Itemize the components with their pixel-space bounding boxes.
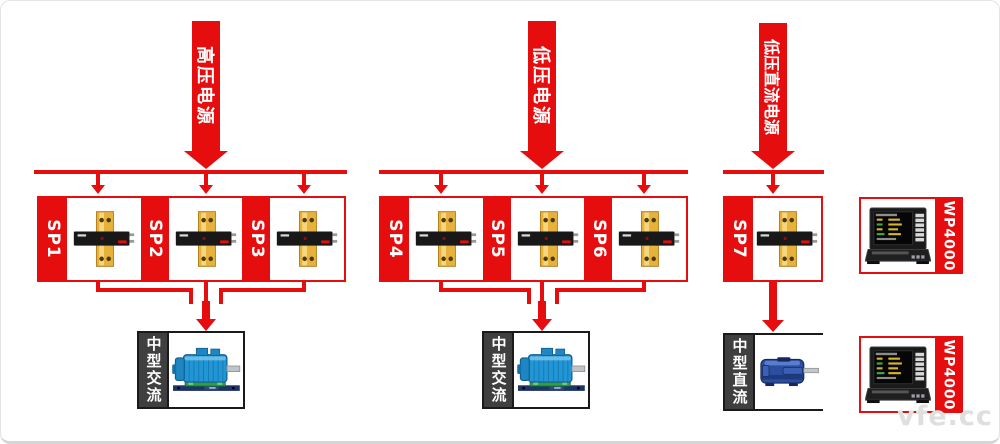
sp-module-sp4: SP4 [381,198,409,280]
banner-label-wrap: 低压直流电源 [759,23,787,151]
sp2-label: SP2 [145,219,165,259]
load-label-medium-dc: 中型直流 [732,338,747,406]
wp4000-analyzer-icon [865,346,931,404]
load-strip: 中型交流 [139,333,169,407]
sp-sensor-panel [67,198,141,280]
sp-module-sp2: SP2 [141,198,169,280]
load-arrow-shaft [769,282,777,322]
load-label-medium-ac: 中型交流 [491,336,506,404]
merge-bracket-stub [555,288,559,304]
sp-module-sp6: SP6 [584,198,612,280]
diagram-canvas: 高压电源 低压电源 低压直流电源 SP1 SP2 [0,0,1000,444]
sp1-label: SP1 [43,219,63,259]
load-arrow-icon [762,320,784,332]
load-panel [169,333,243,407]
sp-sensor-icon [515,209,581,269]
bus-group1 [34,170,347,174]
banner-high-voltage-source: 高压电源 [192,21,220,151]
sp-sensor-icon [413,209,479,269]
dc-motor-icon [755,351,823,393]
sp6-label: SP6 [588,219,608,259]
bus-drop-arrow-icon [434,185,448,194]
sp3-label: SP3 [246,219,266,259]
sp-sensor-panel [612,198,686,280]
merge-bracket-stub [527,288,531,304]
sp5-label: SP5 [487,219,507,259]
sp-module-sp3: SP3 [242,198,270,280]
sp-module-sp1: SP1 [39,198,67,280]
sp7-label: SP7 [729,219,749,259]
merge-bracket [555,288,646,292]
merge-bracket [219,288,306,292]
merge-bracket-stub [219,288,223,304]
merge-bracket [96,288,193,292]
wp4000-label: WP4000 [940,200,956,271]
wp4000-label: WP4000 [940,339,956,410]
banner-label-wrap: 高压电源 [192,21,220,151]
merge-bracket-stub [189,288,193,304]
load-box-medium-ac-2: 中型交流 [482,331,590,409]
load-label-medium-ac: 中型交流 [146,336,161,404]
ac-motor-icon [169,344,243,396]
load-strip: 中型直流 [725,335,755,409]
bus-drop-arrow-icon [637,185,651,194]
wp4000-analyzer-icon [865,207,931,265]
banner-low-voltage-dc-label: 低压直流电源 [761,39,785,135]
sp-sensor-panel [753,198,821,280]
sp-sensor-panel [409,198,483,280]
sp-group-3: SP7 [723,196,823,282]
merge-bracket [439,288,531,292]
bus-drop-arrow-icon [766,185,780,194]
watermark: vfe.cc [897,401,993,432]
banner-high-voltage-label: 高压电源 [193,46,219,126]
sp-sensor-icon [274,209,340,269]
banner-low-voltage-source: 低压电源 [528,21,556,151]
bus-drop-arrow-icon [199,185,213,194]
ac-motor-icon [514,344,588,396]
sp-sensor-icon [616,209,682,269]
load-arrow-shaft [202,301,210,321]
sp-sensor-panel [270,198,344,280]
load-panel [755,335,823,409]
load-arrow-icon [532,319,552,331]
banner-high-voltage-arrow-icon [184,151,228,169]
sp4-label: SP4 [385,219,405,259]
banner-low-voltage-arrow-icon [520,151,564,169]
banner-low-voltage-dc-arrow-icon [751,151,795,169]
sp-group-2: SP4 SP5 SP6 [379,196,688,282]
banner-low-voltage-dc-source: 低压直流电源 [759,23,787,151]
bus-drop-arrow-icon [535,185,549,194]
sp-group-1: SP1 SP2 SP3 [37,196,346,282]
analyzer-panel [861,199,935,272]
load-box-medium-ac-1: 中型交流 [137,331,245,409]
load-arrow-shaft [538,301,546,321]
banner-label-wrap: 低压电源 [528,21,556,151]
sp-sensor-panel [169,198,243,280]
sp-sensor-icon [173,209,239,269]
sp-sensor-icon [71,209,137,269]
load-arrow-icon [196,319,216,331]
load-box-medium-dc: 中型直流 [723,333,823,411]
analyzer-strip: WP4000 [935,199,961,272]
load-panel [514,333,588,407]
sp-sensor-icon [754,209,820,269]
bus-drop-arrow-icon [297,185,311,194]
bus-drop-arrow-icon [91,185,105,194]
load-strip: 中型交流 [484,333,514,407]
analyzer-box-wp4000-1: WP4000 [859,197,963,274]
banner-low-voltage-label: 低压电源 [529,46,555,126]
sp-sensor-panel [511,198,585,280]
sp-module-sp7: SP7 [725,198,753,280]
sp-module-sp5: SP5 [483,198,511,280]
